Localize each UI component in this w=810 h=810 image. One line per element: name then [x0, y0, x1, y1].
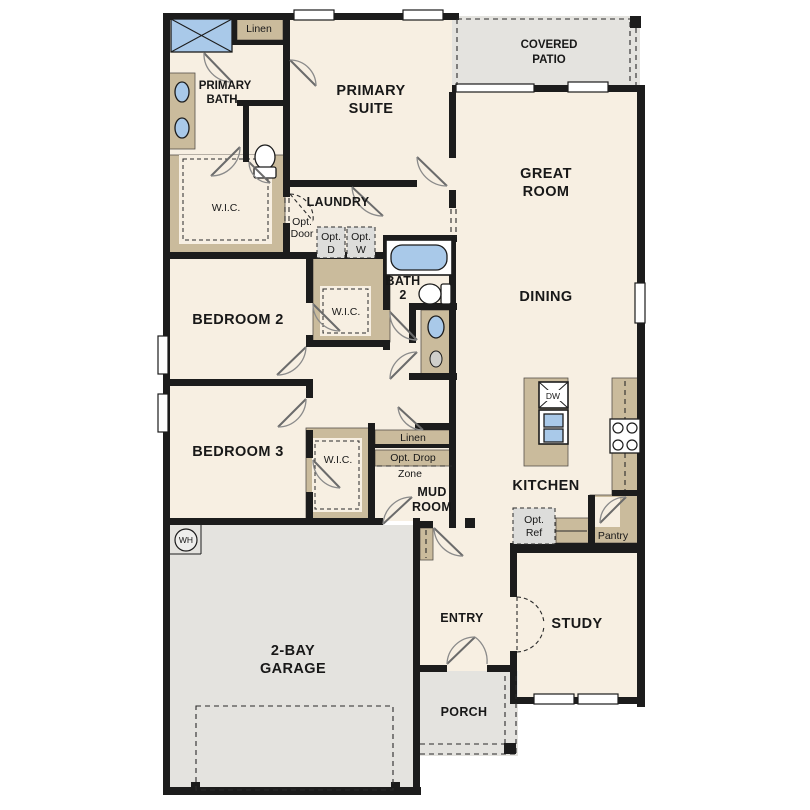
- pantry-floor: [592, 497, 620, 527]
- toilet-icon: [419, 284, 451, 304]
- floor-plan-drawing: PRIMARY BATH PRIMARY SUITE COVERED PATIO…: [0, 0, 810, 810]
- window: [534, 694, 574, 704]
- wic-primary-label: W.I.C.: [212, 202, 241, 214]
- window: [568, 82, 608, 92]
- primary-suite-label: PRIMARY: [336, 83, 405, 99]
- pantry-label: Pantry: [598, 530, 629, 542]
- patio-post: [630, 16, 641, 28]
- range-icon: [610, 419, 640, 453]
- bedroom2-label: BEDROOM 2: [192, 312, 283, 328]
- opt-washer-label: Opt.: [351, 231, 371, 243]
- covered-patio-label: COVERED: [521, 39, 578, 51]
- shower-icon: [171, 19, 232, 52]
- porch-label: PORCH: [441, 705, 488, 719]
- primary-bath-label2: BATH: [206, 94, 237, 106]
- laundry-label: LAUNDRY: [307, 195, 370, 209]
- bedroom3-label: BEDROOM 3: [192, 444, 283, 460]
- study-label: STUDY: [551, 616, 602, 632]
- primary-suite-label2: SUITE: [349, 101, 394, 117]
- kitchen-label: KITCHEN: [512, 478, 579, 494]
- covered-patio-label2: PATIO: [532, 54, 565, 66]
- window: [294, 10, 334, 20]
- sink-icon: [175, 82, 189, 102]
- toilet-icon: [254, 145, 276, 178]
- great-room-label2: ROOM: [523, 184, 570, 200]
- great-room-label: GREAT: [520, 166, 572, 182]
- linen-bath-label: Linen: [246, 23, 272, 35]
- window: [403, 10, 443, 20]
- garage-area: [170, 525, 413, 793]
- dishwasher-label: DW: [546, 391, 560, 401]
- bath2-label2: 2: [399, 288, 406, 302]
- window: [158, 336, 168, 374]
- linen-mud-label: Linen: [400, 432, 426, 444]
- bathtub-icon: [386, 240, 452, 275]
- opt-drop-zone-label: Opt. Drop: [390, 452, 436, 464]
- patio-slider-door: [456, 84, 534, 92]
- wic-bedroom3-label: W.I.C.: [324, 454, 353, 466]
- opt-drop-zone-label2: Zone: [398, 468, 422, 480]
- opt-door-label: Opt.: [292, 216, 312, 228]
- opt-ref-label: Opt.: [524, 514, 544, 526]
- opt-washer-label2: W: [356, 244, 366, 256]
- entry-label: ENTRY: [440, 611, 484, 625]
- bath2-label: BATH: [386, 274, 421, 288]
- opt-ref-label2: Ref: [526, 527, 542, 539]
- window: [635, 283, 645, 323]
- floor-plan: PRIMARY BATH PRIMARY SUITE COVERED PATIO…: [0, 0, 810, 810]
- covered-patio-area: [452, 16, 640, 88]
- garage-label2: GARAGE: [260, 661, 326, 677]
- wic-bedroom2-label: W.I.C.: [332, 306, 361, 318]
- garage-label: 2-BAY: [271, 643, 315, 659]
- primary-bath-label: PRIMARY: [199, 80, 252, 92]
- mud-room-label: MUD: [417, 485, 446, 499]
- dining-label: DINING: [519, 289, 572, 305]
- island-sink-icon: [539, 410, 568, 444]
- window: [578, 694, 618, 704]
- bath-accessory-icon: [430, 351, 442, 367]
- sink-icon: [175, 118, 189, 138]
- sink-icon: [428, 316, 444, 338]
- porch-post: [504, 743, 516, 754]
- window: [158, 394, 168, 432]
- opt-door-label2: Door: [291, 228, 314, 240]
- mud-room-label2: ROOM: [412, 500, 452, 514]
- opt-dryer-label: Opt.: [321, 231, 341, 243]
- opt-dryer-label2: D: [327, 244, 335, 256]
- wic-bed3-floor: [312, 438, 362, 512]
- water-heater-label: WH: [179, 535, 193, 545]
